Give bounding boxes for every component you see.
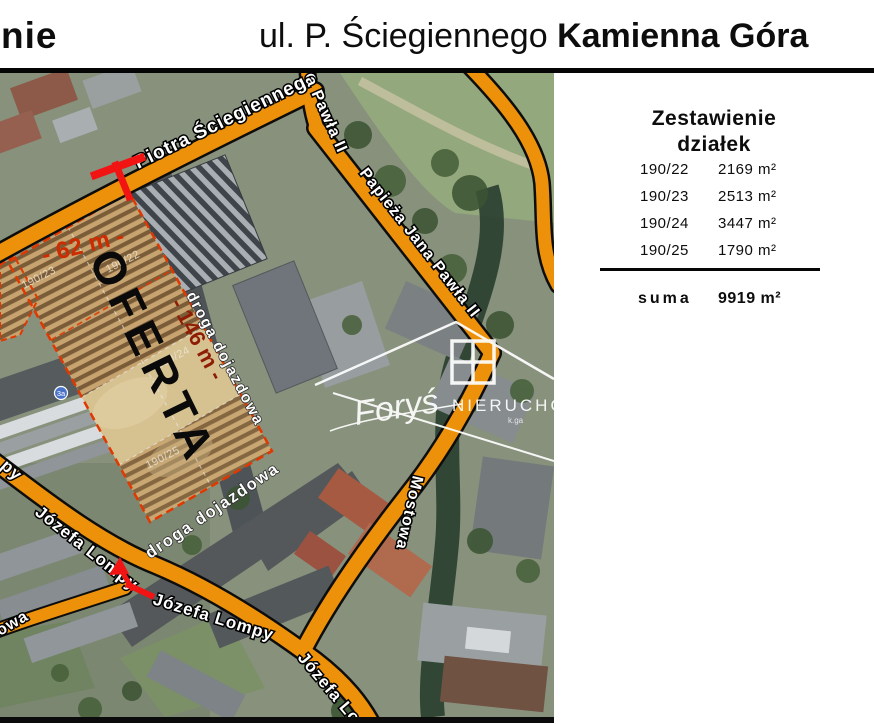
map-svg: 190/22 190/23 190/24 190/25 Piotra Ścieg… [0, 73, 554, 717]
header: nie ul. P. Ściegiennego Kamienna Góra [0, 0, 874, 68]
plot-number: 190/22 [640, 161, 689, 178]
plot-area: 1790 m² [718, 242, 777, 259]
watermark-small-text: k.ga [508, 416, 524, 425]
plot-area: 2513 m² [718, 188, 777, 205]
address-marker-3a-label: 3a [57, 389, 66, 398]
plot-area: 3447 m² [718, 215, 777, 232]
plot-area: 2169 m² [718, 161, 777, 178]
page-title: ul. P. Ściegiennego Kamienna Góra [259, 17, 808, 56]
title-city: Kamienna Góra [557, 17, 808, 55]
suma-label: suma [638, 290, 692, 308]
watermark-caps-text: NIERUCHO [452, 396, 554, 415]
panel-title: Zestawienie działek [554, 106, 874, 158]
address-marker-3a: 3a [55, 387, 68, 400]
plots-table: 190/22 2169 m² 190/23 2513 m² 190/24 344… [554, 161, 874, 269]
header-left-fragment: nie [1, 15, 57, 57]
plot-number: 190/23 [640, 188, 689, 205]
table-row: 190/23 2513 m² [554, 188, 874, 215]
aerial-map: 190/22 190/23 190/24 190/25 Piotra Ścieg… [0, 73, 554, 717]
table-row: 190/25 1790 m² [554, 242, 874, 269]
table-row: 190/24 3447 m² [554, 215, 874, 242]
map-bottom-border [0, 717, 554, 723]
panel-title-line2: działek [554, 132, 874, 158]
suma-value: 9919 m² [718, 290, 781, 308]
panel-title-line1: Zestawienie [554, 106, 874, 132]
plots-summary-panel: Zestawienie działek 190/22 2169 m² 190/2… [554, 73, 874, 724]
plot-number: 190/24 [640, 215, 689, 232]
plot-number: 190/25 [640, 242, 689, 259]
title-street: ul. P. Ściegiennego [259, 17, 548, 55]
summary-divider [600, 268, 820, 271]
table-row: 190/22 2169 m² [554, 161, 874, 188]
